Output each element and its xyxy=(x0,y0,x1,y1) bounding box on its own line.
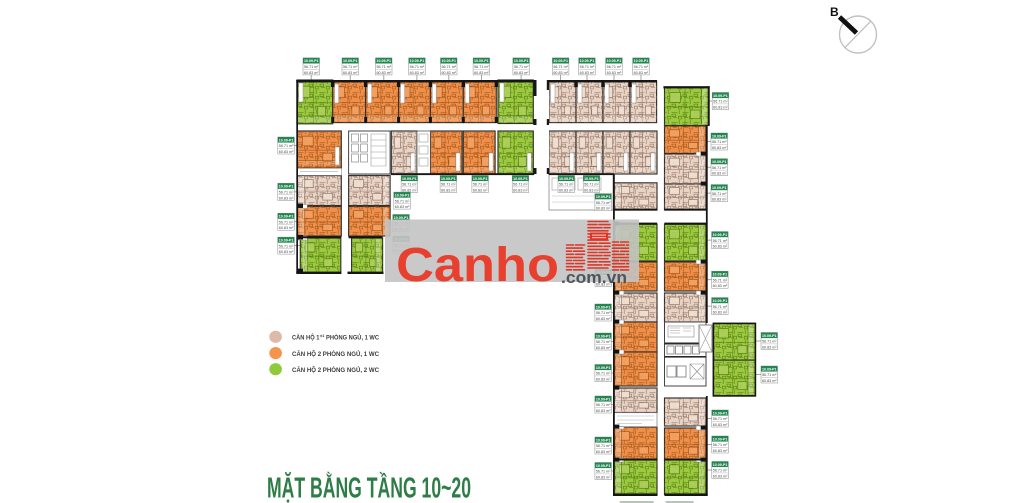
svg-text:MẶT BẰNG TẦNG 10~20: MẶT BẰNG TẦNG 10~20 xyxy=(267,473,471,503)
svg-text:B: B xyxy=(830,5,839,19)
svg-text:CĂN HỘ 2 PHÒNG NGỦ, 1 WC: CĂN HỘ 2 PHÒNG NGỦ, 1 WC xyxy=(292,349,379,358)
svg-text:CĂN HỘ 1⁺¹ PHÒNG NGỦ, 1 WC: CĂN HỘ 1⁺¹ PHÒNG NGỦ, 1 WC xyxy=(292,333,379,342)
svg-text:CĂN HỘ 2 PHÒNG NGỦ, 2 WC: CĂN HỘ 2 PHÒNG NGỦ, 2 WC xyxy=(292,365,379,374)
svg-text:Canho: Canho xyxy=(396,239,559,292)
svg-text:.com.vn: .com.vn xyxy=(561,268,627,287)
